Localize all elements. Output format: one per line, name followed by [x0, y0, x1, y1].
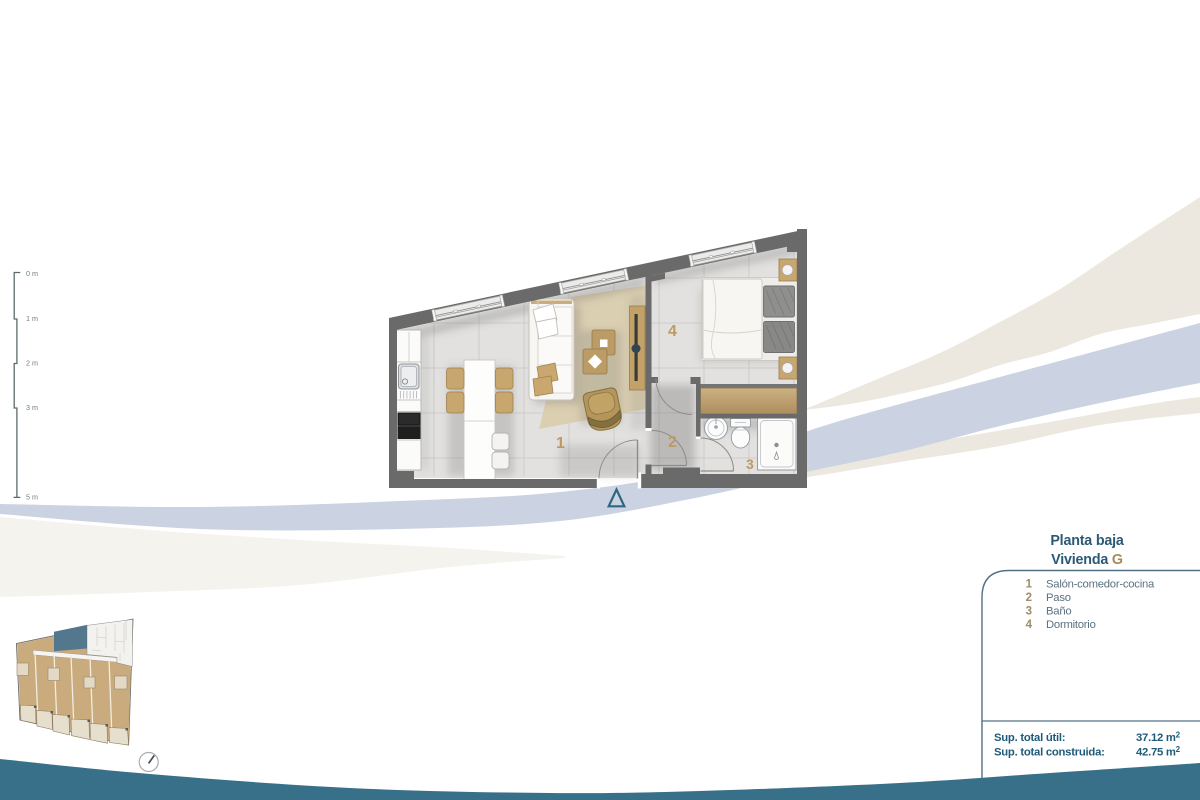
- svg-text:Dormitorio: Dormitorio: [1046, 619, 1096, 631]
- svg-text:Salón-comedor-cocina: Salón-comedor-cocina: [1046, 579, 1155, 591]
- svg-text:Baño: Baño: [1046, 606, 1071, 618]
- svg-text:3: 3: [1026, 606, 1032, 618]
- svg-text:4: 4: [1026, 619, 1033, 631]
- svg-text:37.12 m2: 37.12 m2: [1136, 730, 1181, 744]
- svg-text:5 m: 5 m: [26, 493, 38, 502]
- svg-text:3: 3: [746, 456, 754, 472]
- svg-text:2: 2: [668, 434, 677, 451]
- svg-text:Planta baja: Planta baja: [1050, 533, 1125, 549]
- svg-text:1 m: 1 m: [26, 314, 38, 323]
- svg-text:1: 1: [1026, 579, 1033, 591]
- svg-text:Sup. total útil:: Sup. total útil:: [994, 732, 1065, 744]
- svg-text:2 m: 2 m: [26, 359, 38, 368]
- svg-text:Paso: Paso: [1046, 592, 1071, 604]
- svg-text:2: 2: [1026, 592, 1032, 604]
- svg-text:1: 1: [556, 435, 565, 452]
- svg-text:0 m: 0 m: [26, 269, 38, 278]
- svg-text:Vivienda G: Vivienda G: [1051, 552, 1123, 568]
- svg-text:3 m: 3 m: [26, 403, 38, 412]
- svg-text:42.75 m2: 42.75 m2: [1136, 745, 1181, 759]
- svg-text:Sup. total construida:: Sup. total construida:: [994, 747, 1105, 759]
- svg-text:4: 4: [668, 323, 677, 340]
